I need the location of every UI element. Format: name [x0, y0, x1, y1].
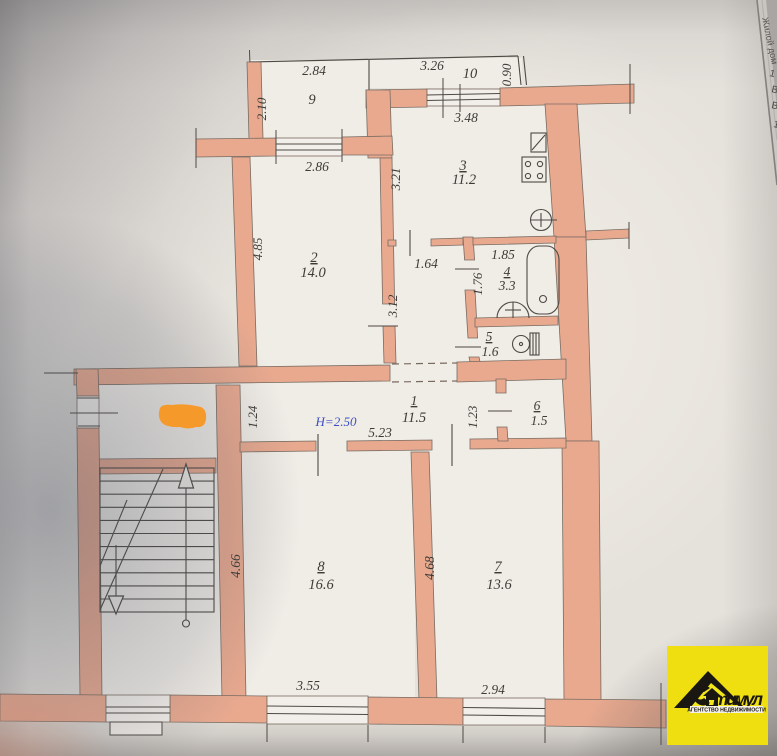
svg-text:В: В: [770, 84, 777, 96]
svg-text:АГЕНТСТВО НЕДВИЖИМОСТИ: АГЕНТСТВО НЕДВИЖИМОСТИ: [687, 708, 766, 714]
svg-text:В: В: [770, 100, 777, 112]
